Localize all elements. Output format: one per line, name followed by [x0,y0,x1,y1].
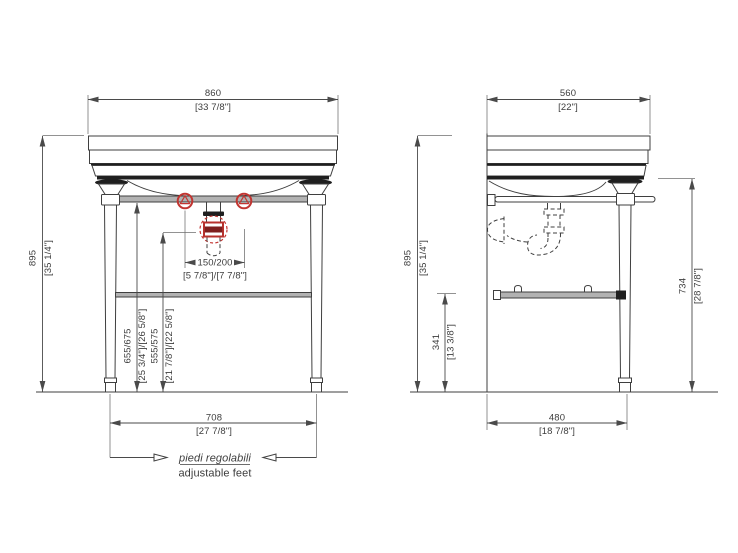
wall-outlet [487,217,504,245]
front-dim-overall-height: 895 [35 1/4"] [28,136,85,392]
adjustable-foot-side [620,383,631,393]
drain-nut [203,212,224,217]
depth-inches: [22"] [558,102,578,113]
front-dim-waste-height: 555/575 [21 7/8"]/[22 5/8"] [150,233,197,392]
adjustable-feet-note: piedi regolabili adjustable feet [110,453,317,480]
depth-mm: 560 [560,88,576,99]
shelf-height-mm: 341 [431,334,442,350]
rail-wall-flange [488,195,496,206]
supply-height-inches: [25 3/4"]/[26 5/8"] [137,309,148,384]
side-dim-overall-depth: 560 [22"] [487,88,650,134]
drawing-svg: 860 [33 7/8"] [0,0,738,553]
left-adjustable-foot [106,383,116,393]
drain-spacing-inches: [5 7/8"]/[7 7/8"] [183,271,247,282]
siphon-trap [487,203,564,255]
basin-underside-curve-side [489,181,606,197]
basin-underside-curve [127,181,299,197]
front-dim-feet-span: 708 [27 7/8"] [110,394,317,458]
note-italian: piedi regolabili [178,453,251,465]
feet-depth-mm: 480 [549,413,565,424]
supply-height-mm: 655/675 [123,328,134,363]
shelf-hooks [515,286,592,293]
frame-top-rail-front [103,196,324,202]
leader-arrow-right [263,454,276,461]
basin-front [89,136,338,197]
drain-pipe-dashed [207,238,220,256]
drain-spacing-mm: 150/200 [197,258,232,269]
shelf-side [494,286,627,300]
front-width-mm: 860 [205,88,221,99]
front-view: 860 [33 7/8"] [28,88,349,480]
side-dim-shelf-height: 341 [13 3/8"] [431,294,457,392]
side-dim-frame-height: 734 [28 7/8"] [658,179,704,392]
note-english: adjustable feet [178,468,251,480]
front-height-mm: 895 [28,250,39,266]
right-leg-front [299,179,332,392]
feet-depth-inches: [18 7/8"] [539,426,575,437]
front-dim-overall-width: 860 [33 7/8"] [88,88,338,134]
leg-side [608,178,643,392]
front-width-inches: [33 7/8"] [195,102,231,113]
waste-height-mm: 555/575 [150,328,161,363]
shelf-height-inches: [13 3/8"] [446,324,457,360]
crossbar-front [116,293,312,298]
drain-assembly-front [200,202,227,256]
side-dim-feet-depth: 480 [18 7/8"] [487,394,627,437]
feet-span-mm: 708 [206,413,222,424]
leader-arrow-left [154,454,167,461]
front-height-inches: [35 1/4"] [43,240,54,276]
side-view: 560 [22"] [403,88,719,437]
frame-height-mm: 734 [678,278,689,294]
side-height-mm: 895 [403,250,414,266]
technical-drawing-console-washbasin: 860 [33 7/8"] [0,0,738,553]
waste-height-inches: [21 7/8"]/[22 5/8"] [164,309,175,384]
frame-height-inches: [28 7/8"] [693,268,704,304]
side-height-inches: [35 1/4"] [418,240,429,276]
front-dim-drain-spacing: 150/200 [5 7/8"]/[7 7/8"] [183,211,247,282]
feet-span-inches: [27 7/8"] [196,426,232,437]
right-adjustable-foot [312,383,322,393]
drain-valve [200,216,227,243]
